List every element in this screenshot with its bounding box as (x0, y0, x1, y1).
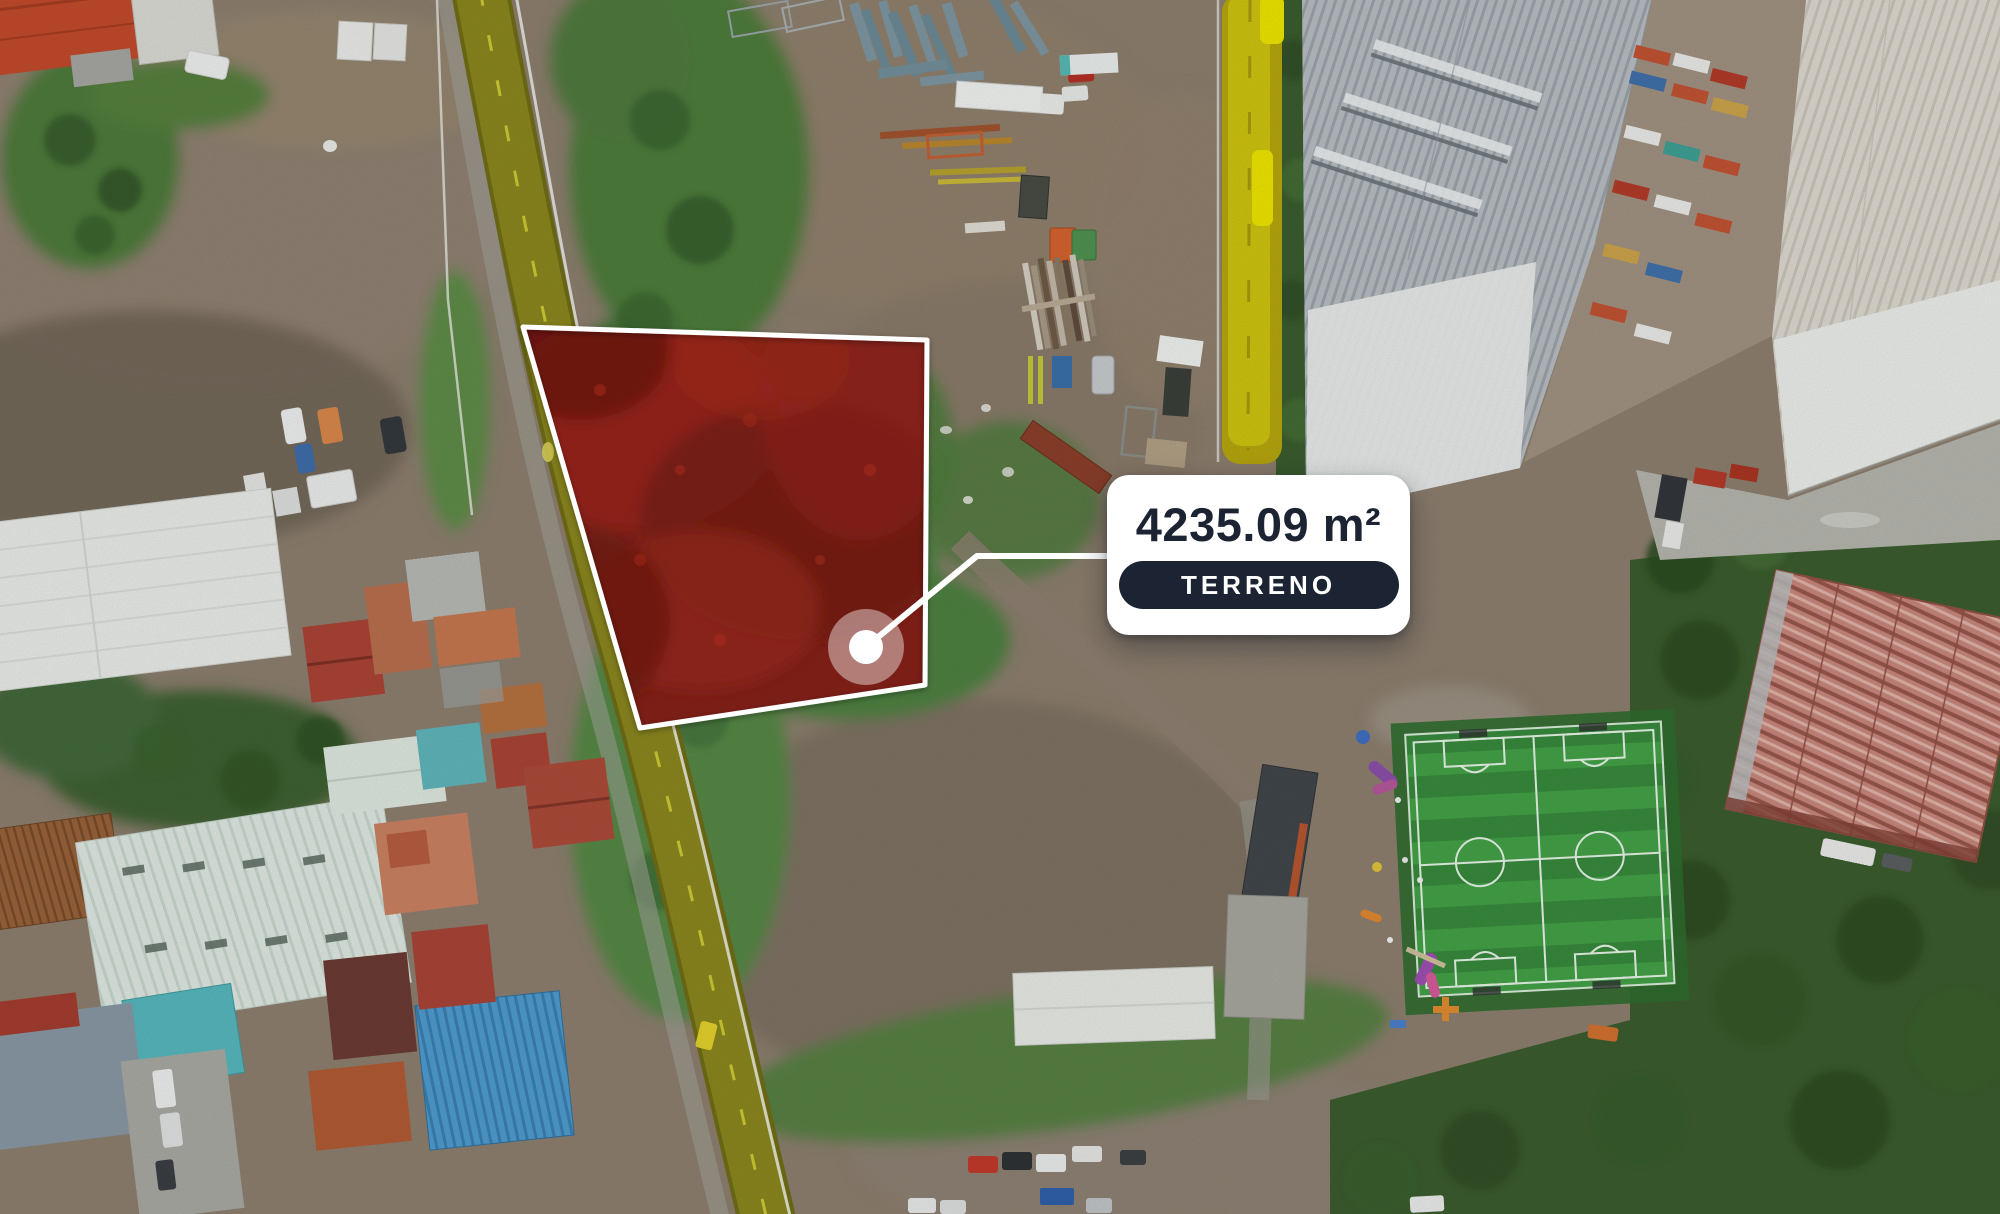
aerial-photo (0, 0, 2000, 1214)
photo-grain (0, 0, 2000, 1214)
area-value: 4235.09 m² (1136, 501, 1381, 548)
terreno-badge-label: TERRENO (1181, 572, 1336, 598)
parcel-marker-dot (849, 630, 883, 664)
aerial-listing-image: 4235.09 m² TERRENO (0, 0, 2000, 1214)
area-card: 4235.09 m² TERRENO (1107, 475, 1410, 635)
terreno-badge: TERRENO (1119, 561, 1399, 609)
